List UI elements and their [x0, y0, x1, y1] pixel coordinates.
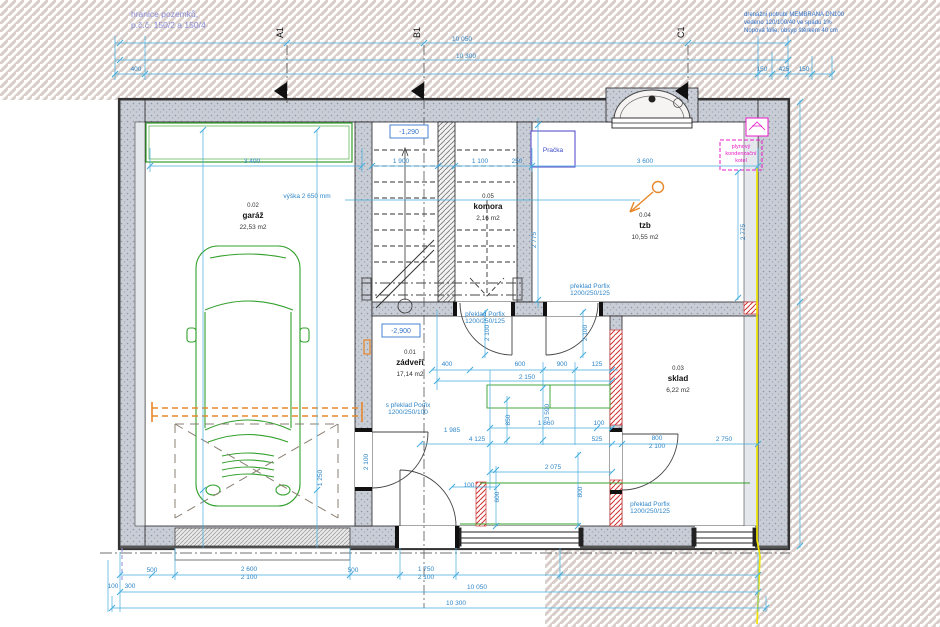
dimension-label: 1 900 [393, 158, 410, 165]
washer-label: Pračka [543, 147, 564, 154]
room-area: 2,16 m2 [476, 215, 500, 222]
room-number: 0.04 [639, 213, 651, 219]
dimension-label: překlad Porfix [570, 283, 610, 290]
dimension-label: s překlad Porfix [386, 402, 432, 409]
section-marker-b1: B1 [412, 27, 422, 38]
dimension-label: 1200/250/100 [388, 409, 428, 416]
room-name: tzb [639, 221, 651, 230]
boiler-note-line3: kotel [735, 158, 747, 164]
room-area: 22,53 m2 [239, 224, 266, 231]
dimension-label: 4 125 [469, 436, 486, 443]
dimension-label: 400 [442, 361, 453, 368]
section-marker-c1: C1 [676, 26, 686, 38]
level-badge-stair: -1,290 [390, 125, 428, 138]
room-number: 0.05 [482, 194, 494, 200]
dimension-label: 1 750 [418, 566, 435, 573]
drain-note-line1: drenážní potrubí MEMBRANA DN100 [744, 12, 845, 18]
dimension-label: 600 [494, 491, 501, 502]
dimension-label: 3 600 [637, 158, 654, 165]
boiler-note-line1: plynový [732, 144, 751, 150]
dimension-label: výška 2 650 mm [283, 193, 330, 200]
room-area: 10,55 m2 [631, 234, 658, 241]
floor-plan-drawing: plynový kondenzační kotel Pračka A1 B1 C… [0, 0, 940, 627]
dimension-label: 2 750 [716, 436, 733, 443]
room-name: komora [474, 202, 503, 211]
dimension-label: 2 150 [519, 374, 536, 381]
floor-plan-canvas: plynový kondenzační kotel Pračka A1 B1 C… [0, 0, 940, 627]
drain-dot [649, 96, 656, 103]
drain-note-line3: Nopová fólie, obsyp štěrkem 40 cm [744, 28, 838, 34]
dimension-label: 150 [757, 66, 768, 73]
site-note-line2: p.č.č. 150/2 a 150/4 [131, 20, 206, 30]
dimension-label: 2 600 [241, 566, 258, 573]
garage-door-opening [175, 528, 350, 560]
boiler-note-line2: kondenzační [725, 151, 757, 157]
dimension-label: 1 985 [444, 427, 461, 434]
dimension-label: 800 [577, 486, 584, 497]
dimension-label: 2 775 [740, 223, 747, 240]
dimension-label: 2 100 [484, 324, 491, 341]
dimension-label: 425 [779, 66, 790, 73]
dimension-label: 1 100 [472, 158, 489, 165]
dimension-label: 100 [594, 420, 605, 427]
dimension-label: 125 [592, 361, 603, 368]
dimension-label: 1 860 [538, 420, 555, 427]
drain-note: drenážní potrubí MEMBRANA DN100 vedeno 1… [744, 12, 845, 34]
dimension-label: 10 050 [467, 584, 487, 591]
room-number: 0.03 [672, 366, 684, 372]
dimension-label: 500 [147, 567, 158, 574]
dimension-label: 3 590 [544, 403, 551, 420]
dimension-label: 1200/250/125 [630, 508, 670, 515]
dimension-label: 400 [131, 66, 142, 73]
dimension-label: 2 100 [241, 574, 258, 581]
dimension-label: překlad Porfix [630, 501, 670, 508]
dimension-label: 2 100 [649, 443, 666, 450]
room-number: 0.02 [247, 203, 259, 209]
dimension-label: 3 400 [244, 158, 261, 165]
washer-box: Pračka [531, 131, 575, 167]
dimension-label: 600 [515, 361, 526, 368]
dimension-label: 850 [505, 414, 512, 425]
dimension-label: 2 075 [545, 464, 562, 471]
dimension-label: 300 [125, 583, 136, 590]
site-note-line1: hranice pozemků, [131, 9, 198, 19]
drain-note-line2: vedeno 120/100/40 ve spádu 1% [744, 20, 832, 26]
dimension-label: 10 300 [446, 600, 466, 607]
level-value-floor: -2,900 [391, 328, 411, 335]
level-value-stair: -1,290 [399, 129, 419, 136]
room-name: sklad [668, 374, 689, 383]
dimension-label: 1 250 [317, 469, 324, 486]
dimension-label: 1200/250/125 [570, 290, 610, 297]
dimension-label: 900 [557, 361, 568, 368]
dimension-label: 2 100 [363, 453, 370, 470]
dimension-label: 1200/250/125 [465, 318, 505, 325]
dimension-label: 10 300 [456, 53, 476, 60]
dimension-label: 2 100 [418, 574, 435, 581]
room-name: zádveří [396, 358, 424, 367]
dimension-label: 2 100 [582, 324, 589, 341]
dimension-label: 10 050 [452, 36, 472, 43]
site-boundary-note: hranice pozemků, p.č.č. 150/2 a 150/4 [131, 9, 206, 30]
dimension-label: 2 775 [531, 231, 538, 248]
dimension-label: překlad Porfix [465, 311, 505, 318]
dimension-label: 100 [108, 583, 119, 590]
dimension-label: 100 [464, 482, 475, 489]
level-badge-floor: -2,900 [382, 324, 420, 337]
room-name: garáž [243, 211, 264, 220]
dimension-label: 800 [652, 435, 663, 442]
dimension-label: 525 [592, 436, 603, 443]
dimension-label: 150 [799, 66, 810, 73]
dimension-label: 500 [348, 567, 359, 574]
dimension-label: 250 [512, 158, 523, 165]
room-area: 17,14 m2 [396, 371, 423, 378]
section-marker-a1: A1 [275, 27, 285, 38]
room-number: 0.01 [404, 350, 416, 356]
room-area: 6,22 m2 [666, 387, 690, 394]
